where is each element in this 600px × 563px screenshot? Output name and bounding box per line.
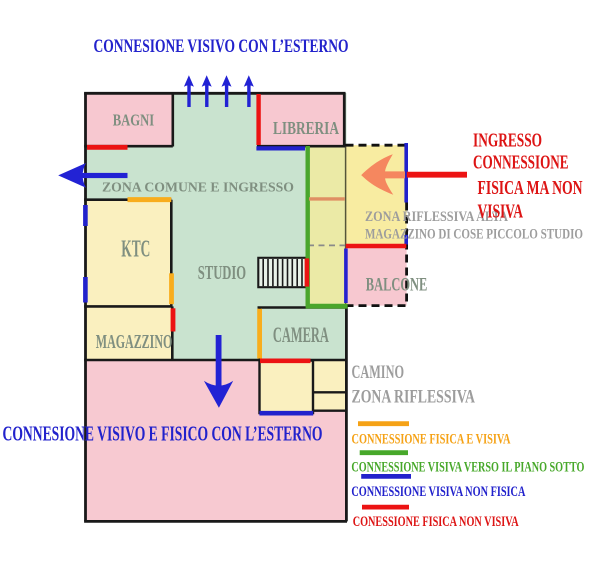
- svg-text:BAGNI: BAGNI: [113, 111, 155, 130]
- svg-text:CONNESSIONE FISICA E VISIVA: CONNESSIONE FISICA E VISIVA: [352, 431, 511, 447]
- svg-text:VISIVA: VISIVA: [478, 201, 524, 223]
- svg-text:CONESSIONE FISICA NON VISIVA: CONESSIONE FISICA NON VISIVA: [353, 514, 519, 530]
- svg-text:MAGAZZINO: MAGAZZINO: [96, 331, 173, 353]
- svg-text:CONNESSIONE VISIVA NON FISICA: CONNESSIONE VISIVA NON FISICA: [351, 484, 525, 500]
- svg-text:FISICA MA NON: FISICA MA NON: [478, 177, 583, 199]
- svg-text:CAMERA: CAMERA: [273, 322, 329, 347]
- svg-text:CONNESSIONE: CONNESSIONE: [473, 152, 569, 174]
- svg-text:CONNESIONE VISIVO E FISICO CON: CONNESIONE VISIVO E FISICO CON L’ESTERNO: [3, 422, 323, 446]
- svg-text:ZONA COMUNE E INGRESSO: ZONA COMUNE E INGRESSO: [102, 179, 294, 194]
- svg-text:LIBRERIA: LIBRERIA: [273, 118, 339, 138]
- svg-text:INGRESSO: INGRESSO: [473, 129, 542, 151]
- svg-text:MAGAZZINO DI COSE PICCOLO STUD: MAGAZZINO DI COSE PICCOLO STUDIO: [365, 226, 583, 242]
- svg-text:BALCONE: BALCONE: [366, 275, 428, 295]
- svg-text:ZONA RIFLESSIVA: ZONA RIFLESSIVA: [352, 386, 476, 407]
- svg-text:STUDIO: STUDIO: [198, 262, 246, 284]
- svg-text:CAMINO: CAMINO: [352, 362, 405, 383]
- svg-text:CONNESIONE VISIVO CON L’ESTERN: CONNESIONE VISIVO CON L’ESTERNO: [94, 37, 349, 57]
- svg-text:CONNESSIONE VISIVA VERSO IL PI: CONNESSIONE VISIVA VERSO IL PIANO SOTTO: [351, 460, 584, 476]
- svg-text:KTC: KTC: [121, 237, 150, 263]
